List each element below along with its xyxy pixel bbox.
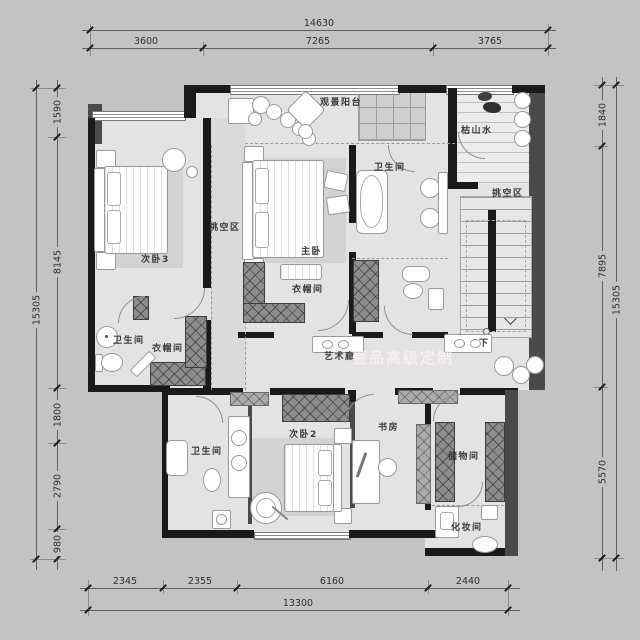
plant	[248, 112, 262, 126]
wall	[512, 85, 545, 93]
room-label-closet-left: 衣帽间	[152, 341, 184, 354]
plant	[494, 356, 514, 376]
dim-left-seg-1: 8145	[53, 247, 64, 277]
basin-sink	[420, 178, 440, 198]
bathtub-basin	[360, 175, 383, 228]
dim-right-seg-1: 7895	[598, 251, 609, 281]
dim-line-bottom-total	[80, 610, 520, 611]
dim-bottom-seg-0: 2345	[113, 576, 137, 587]
pillow	[107, 210, 121, 244]
dim-line-top-segments	[82, 48, 556, 49]
stair-opening-dashed	[466, 220, 526, 332]
window	[254, 532, 351, 540]
room-label-stairs-down: 下	[479, 336, 490, 349]
stepping-stone	[514, 92, 531, 109]
desk-chair	[378, 458, 397, 477]
dim-bottom-seg-2: 6160	[320, 576, 344, 587]
nightstand	[334, 428, 352, 444]
dim-bottom-total: 13300	[283, 598, 313, 609]
decor-item	[322, 340, 333, 349]
decor-item	[454, 339, 465, 348]
room-label-closet-master: 衣帽间	[292, 282, 324, 295]
balcony-sliding-door	[245, 143, 455, 144]
room-label-void-left: 挑空区	[209, 220, 241, 233]
room-label-study: 书房	[378, 420, 399, 433]
floor-plan-canvas: 14630 3600 7265 3765 2345 2355 6160 2440…	[0, 0, 640, 640]
wardrobe	[485, 422, 505, 502]
toilet	[472, 536, 498, 553]
plant	[526, 356, 544, 374]
wall	[505, 390, 518, 556]
vanity-counter	[438, 172, 448, 234]
dim-left-total: 15305	[32, 292, 43, 328]
pillow	[318, 480, 332, 506]
bath-divider-dashed	[352, 258, 448, 259]
room-label-bath-bottom: 卫生间	[191, 444, 223, 457]
pillow	[255, 212, 269, 248]
floor-void-strip	[211, 118, 245, 390]
wall	[349, 530, 447, 538]
stepping-stone	[514, 111, 531, 128]
bay-window	[92, 111, 186, 121]
watermark: 壹品高级定制	[352, 347, 454, 368]
dim-top-seg-0: 3600	[134, 36, 158, 47]
dim-line-right-segments	[602, 77, 603, 571]
dim-left-seg-2: 1800	[53, 400, 64, 430]
dim-line-top-total	[82, 30, 556, 31]
wardrobe	[353, 260, 379, 322]
void-boundary-dashed	[211, 145, 212, 390]
room-label-bedroom3: 次卧3	[141, 252, 170, 265]
cabinet-hatched	[230, 392, 269, 406]
wardrobe	[435, 422, 455, 502]
bench-cushion	[326, 195, 350, 216]
dim-left-seg-3: 2790	[53, 471, 64, 501]
wall	[203, 118, 211, 288]
wall	[184, 85, 196, 118]
cabinet	[428, 288, 444, 310]
room-label-rock-garden: 枯山水	[461, 123, 493, 136]
wardrobe	[282, 394, 350, 422]
room-label-bath-left: 卫生间	[113, 333, 145, 346]
wall	[425, 548, 509, 556]
room-label-bedroom2: 次卧2	[289, 427, 318, 440]
wall	[448, 182, 478, 189]
room-label-makeup: 化妆间	[451, 520, 483, 533]
sink-drain-dot	[105, 335, 108, 338]
dim-right-total: 15305	[612, 282, 623, 318]
rock	[483, 102, 501, 113]
room-label-bath-master: 卫生间	[374, 160, 406, 173]
dim-top-seg-2: 3765	[478, 36, 502, 47]
pillow	[255, 168, 269, 204]
decor-item	[338, 340, 349, 349]
storage-box	[481, 505, 498, 520]
wall	[412, 332, 448, 338]
wall	[349, 145, 356, 223]
dim-top-seg-1: 7265	[306, 36, 330, 47]
basin-sink	[231, 455, 247, 471]
basin-sink	[420, 208, 440, 228]
toilet	[101, 353, 123, 372]
dim-line-right-total	[616, 77, 617, 571]
wall	[88, 118, 95, 392]
stepping-stone	[514, 130, 531, 147]
dim-right-seg-0: 1840	[598, 100, 609, 130]
wall	[88, 385, 170, 392]
wardrobe	[243, 303, 305, 323]
side-table	[186, 166, 198, 178]
dim-left-seg-4: 980	[53, 532, 64, 556]
toilet	[403, 283, 423, 299]
side-table	[298, 124, 313, 139]
wardrobe	[185, 316, 207, 368]
wall	[162, 530, 254, 538]
wall	[448, 88, 457, 188]
wall	[398, 85, 446, 93]
room-label-balcony: 观景阳台	[320, 95, 362, 108]
window	[230, 85, 400, 95]
basin-sink	[231, 430, 247, 446]
pillow	[107, 172, 121, 206]
room-label-gallery: 艺术廊	[324, 349, 356, 362]
bathtub	[166, 440, 188, 476]
dim-line-bottom-segments	[80, 588, 520, 589]
room-label-void-right: 挑空区	[492, 186, 524, 199]
dim-bottom-seg-3: 2440	[456, 576, 480, 587]
dim-left-seg-0: 1590	[53, 97, 64, 127]
armchair	[162, 148, 186, 172]
toilet	[203, 468, 221, 492]
dim-right-seg-2: 5570	[598, 457, 609, 487]
dim-bottom-seg-1: 2355	[188, 576, 212, 587]
closet-island	[280, 264, 322, 280]
room-label-storage: 储物间	[448, 449, 480, 462]
room-label-master: 主卧	[301, 244, 322, 257]
pillow	[318, 450, 332, 476]
balcony-tile-paving	[358, 91, 426, 141]
wall	[238, 332, 274, 338]
nightstand	[96, 252, 116, 270]
wardrobe	[416, 424, 431, 504]
washer-door	[216, 514, 227, 525]
dim-top-total: 14630	[304, 18, 334, 29]
soaking-tub	[402, 266, 430, 282]
